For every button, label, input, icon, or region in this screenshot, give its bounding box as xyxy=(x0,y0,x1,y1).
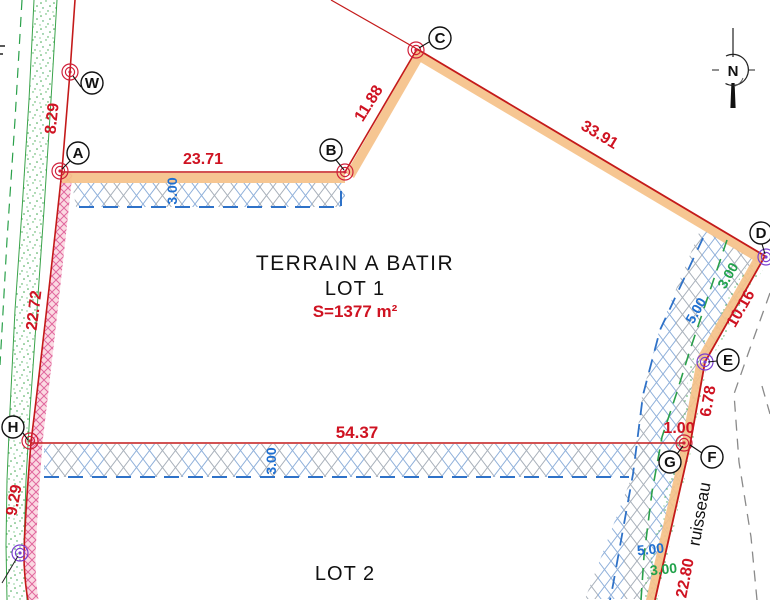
point-letter-F: F xyxy=(707,449,716,466)
setback-bottom-blue: 5.00 xyxy=(636,540,665,559)
cutoff-text-fragment xyxy=(0,46,5,54)
point-letter-B: B xyxy=(326,142,337,159)
point-letter-W: W xyxy=(85,75,100,92)
plan-drawing: W A B C D E F xyxy=(0,0,770,600)
setback-top-blue: 3.00 xyxy=(164,177,180,204)
point-letter-E: E xyxy=(723,352,733,369)
dim-F-south: 22.80 xyxy=(673,557,697,600)
dim-GF: 1.00 xyxy=(663,420,694,437)
stream-bank-dashed-line xyxy=(734,293,770,600)
point-label-F: F xyxy=(690,445,723,468)
point-label-A: A xyxy=(62,142,89,169)
point-label-B: B xyxy=(320,139,344,170)
dim-WA: 8.29 xyxy=(42,102,62,135)
setback-hatch-zones xyxy=(44,183,760,599)
setback-bottom-green: 3.00 xyxy=(649,560,678,579)
northeast-ext-line xyxy=(331,0,417,49)
south-setback-hatch xyxy=(44,444,680,477)
point-letter-D: D xyxy=(756,225,767,242)
dim-AB: 23.71 xyxy=(183,151,223,168)
stream-setback-hatch xyxy=(585,228,760,599)
north-arrow: N xyxy=(712,28,755,108)
dim-AH: 22.72 xyxy=(24,289,46,331)
parcel-title: TERRAIN A BATIR xyxy=(256,252,454,275)
band-AB xyxy=(62,173,345,183)
north-setback-hatch xyxy=(72,183,345,207)
band-CD xyxy=(412,49,765,264)
stream-bank-dashed-line-2 xyxy=(762,386,770,414)
dim-HG: 54.37 xyxy=(336,423,379,442)
lot1-label: LOT 1 xyxy=(325,278,385,300)
point-letter-H: H xyxy=(8,419,19,436)
area-label: S=1377 m² xyxy=(313,302,398,321)
lot2-label: LOT 2 xyxy=(315,563,375,585)
cadastral-plan: W A B C D E F xyxy=(0,0,770,600)
north-letter: N xyxy=(728,63,739,80)
point-label-C: C xyxy=(419,27,451,49)
point-letter-C: C xyxy=(435,30,446,47)
setback-mid-blue: 3.00 xyxy=(263,447,279,474)
stream-label: ruisseau xyxy=(685,481,715,548)
point-letter-G: G xyxy=(664,454,676,471)
north-arrow-tail xyxy=(730,83,735,108)
point-letter-A: A xyxy=(73,145,84,162)
